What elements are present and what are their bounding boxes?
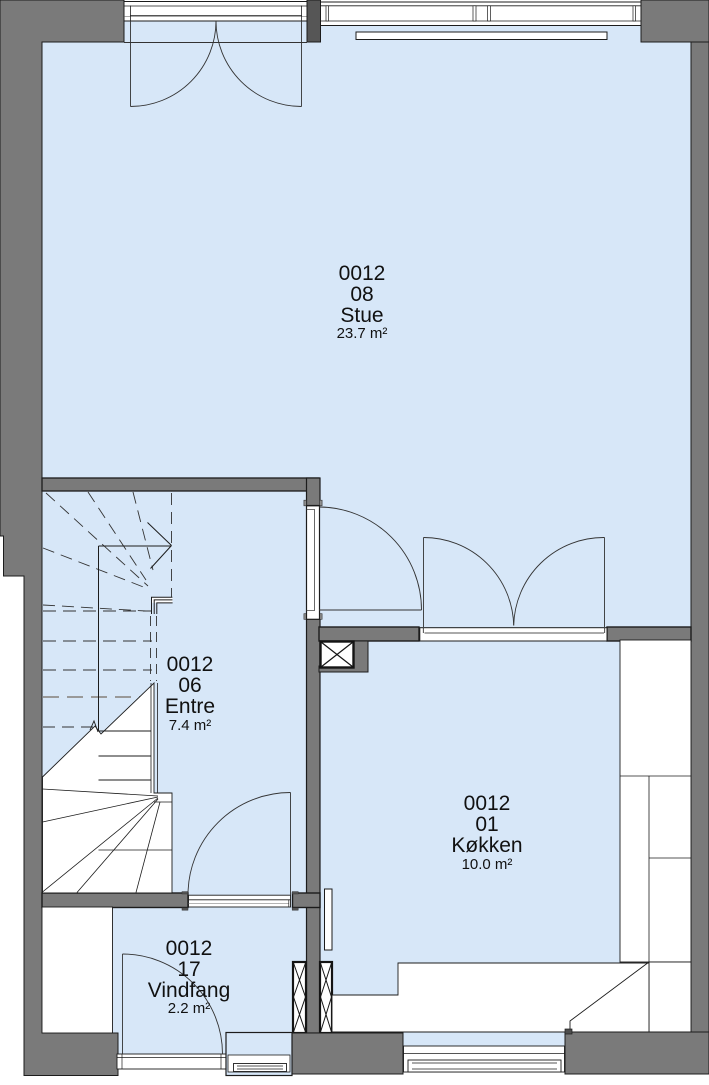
svg-text:0012: 0012 (167, 653, 214, 676)
svg-text:2.2 m²: 2.2 m² (168, 1000, 211, 1017)
svg-text:0012: 0012 (166, 937, 213, 960)
svg-text:Vindfang: Vindfang (148, 979, 231, 1002)
svg-text:7.4 m²: 7.4 m² (169, 717, 212, 734)
svg-text:Stue: Stue (340, 304, 383, 327)
svg-text:Entre: Entre (165, 695, 215, 718)
svg-text:01: 01 (475, 813, 498, 836)
svg-text:23.7 m²: 23.7 m² (337, 325, 388, 342)
svg-text:17: 17 (177, 958, 200, 981)
svg-text:06: 06 (178, 674, 201, 697)
svg-text:0012: 0012 (464, 792, 511, 815)
svg-text:0012: 0012 (339, 262, 386, 285)
svg-text:08: 08 (350, 283, 373, 306)
svg-text:Køkken: Køkken (451, 834, 522, 857)
svg-text:10.0 m²: 10.0 m² (462, 856, 513, 873)
